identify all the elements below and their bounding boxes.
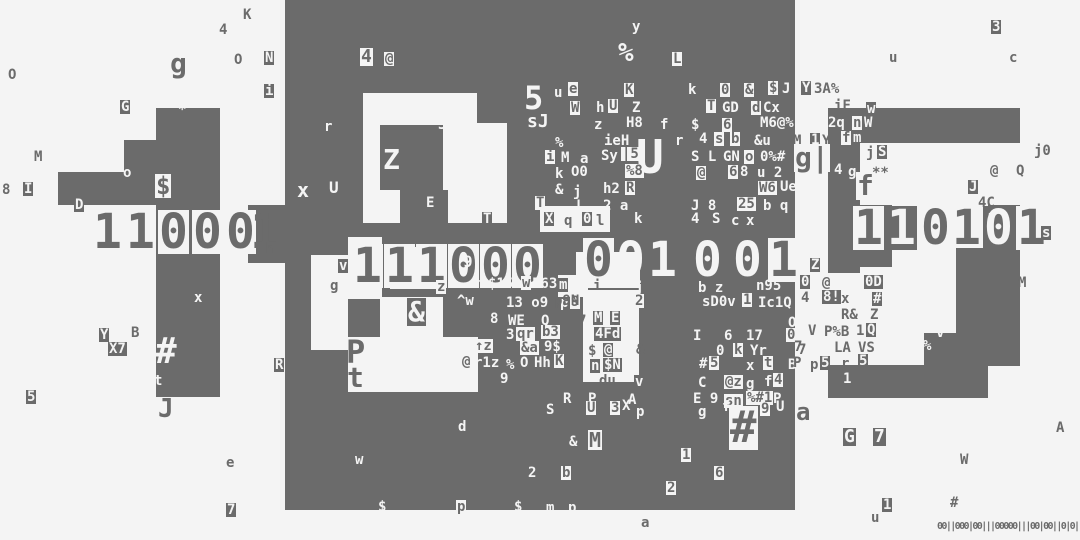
glyph: 9 (760, 402, 770, 416)
glyph: M (588, 430, 602, 450)
glyph: o (123, 166, 131, 180)
big-digit: 1 (853, 206, 884, 250)
glyph: 4 (699, 132, 707, 146)
barcode-strip: 00||000|00|||00000|||00|00||0|0| (937, 521, 1078, 532)
glyph: # (155, 334, 177, 370)
glyph: b z (698, 281, 723, 295)
glyph: 6 (722, 118, 732, 132)
glyph: 7 (873, 428, 886, 446)
glyph: 6 (728, 165, 738, 179)
glyph: I (23, 182, 33, 196)
glyph: 2 (528, 466, 536, 480)
glyph: Q (1016, 164, 1024, 178)
glyph: iF (834, 99, 851, 113)
glyph: 8! (822, 290, 841, 304)
glyph: g (444, 94, 469, 136)
glyph: k (733, 343, 743, 357)
glyph: 1 (681, 448, 691, 462)
glyph: 1 (742, 293, 752, 307)
glyph: P (988, 212, 995, 223)
glyph: f (764, 375, 772, 389)
glyph: & (744, 83, 754, 97)
glyph: J (158, 396, 174, 422)
glyph: h (265, 242, 273, 256)
glyph: p (636, 405, 644, 419)
big-digit: 1 (952, 206, 981, 250)
glyph: LA (834, 341, 851, 355)
glyph: P%B (824, 325, 849, 339)
glyph: 8 (2, 183, 10, 197)
glyph: J (968, 180, 978, 194)
glyph: S (546, 403, 554, 417)
glyph: r (324, 120, 332, 134)
glyph: X7 (108, 342, 127, 356)
glyph: s (1041, 226, 1051, 240)
glyph: r1z (474, 356, 499, 370)
glyph: G (843, 428, 856, 446)
glyph: F63 (532, 277, 557, 291)
glyph: M (561, 151, 569, 165)
glyph: U (776, 400, 784, 414)
glyph: 4 (691, 212, 699, 226)
big-digit: 0 (192, 210, 223, 254)
glyph: o (744, 150, 754, 164)
glyph: S (877, 145, 887, 159)
big-digit: 1 (352, 244, 383, 288)
glyph: 0 (800, 275, 810, 289)
glyph: 5 (524, 82, 543, 114)
glyph: 0 (582, 212, 592, 226)
glyph: # (699, 357, 707, 371)
glyph: T (706, 99, 716, 113)
glyph: 0D (864, 275, 883, 289)
glyph: 0 (720, 83, 730, 97)
big-digit: 0 (732, 238, 763, 282)
glyph: Z (383, 146, 400, 174)
glyph: % (555, 136, 563, 150)
glyph: Hh (534, 356, 551, 370)
glyph: v (634, 375, 644, 389)
glyph: % (923, 339, 931, 353)
glyph: c (1009, 51, 1017, 65)
glyph: 4Fd (594, 327, 621, 341)
glyph: GD (722, 101, 739, 115)
glyph: j0 (1034, 144, 1051, 158)
glyph: n (852, 116, 862, 130)
glyph: Y (99, 328, 109, 342)
glyph: 4 (219, 23, 227, 37)
glyph: m (546, 501, 554, 515)
glyph: z (436, 280, 446, 294)
glyph: I (693, 329, 701, 343)
glyph: j (573, 185, 581, 199)
glyph: @ (696, 166, 706, 180)
glyph: 9 (500, 372, 508, 386)
glyph: 3A% (814, 82, 839, 96)
glyph: & (636, 343, 644, 357)
glyph: M6@% (760, 116, 794, 130)
big-digit: 0 (583, 238, 614, 282)
glyph: l (596, 214, 604, 228)
glyph: L (672, 52, 682, 66)
glyph: 4 (834, 163, 842, 177)
glyph: G (450, 356, 458, 370)
glyph: R (274, 358, 284, 372)
glyph: g (170, 50, 187, 78)
glyph: 4 (360, 48, 373, 66)
glyph: J (782, 82, 790, 96)
glyph: % (506, 358, 514, 372)
glyph: 1 (843, 372, 851, 386)
glyph: # (729, 406, 758, 450)
big-digit: 0 (616, 238, 645, 282)
glyph: ↑z (474, 339, 493, 353)
glyph: v (338, 259, 348, 273)
glyph: Cx (763, 101, 780, 115)
glyph: &a (520, 341, 539, 355)
glyph: W6 (758, 181, 777, 195)
glyph: 3 (610, 401, 620, 415)
glyph: k (634, 212, 642, 226)
glyph: 4 (773, 373, 783, 387)
glyph: t (763, 356, 773, 370)
glyph: Z (632, 101, 640, 115)
glyph: u (889, 51, 897, 65)
big-digit: 1 (126, 210, 155, 254)
glyph: P (793, 356, 801, 370)
glyph: c (731, 214, 739, 228)
glyph: b q (763, 199, 788, 213)
glyph: 2 (666, 481, 676, 495)
glyph: t (347, 364, 364, 392)
glyph: B (131, 326, 139, 340)
glyph: &u (754, 134, 771, 148)
big-digit: 1 (648, 238, 677, 282)
glyph: m (853, 131, 861, 145)
big-digit: 0 (158, 210, 189, 254)
glyph: E (610, 311, 620, 325)
glyph: f (841, 131, 851, 145)
glyph: @ (461, 355, 471, 369)
glyph: w (521, 276, 531, 290)
glyph: 9 (463, 254, 473, 270)
glyph: C (698, 376, 706, 390)
glyph: S L (691, 150, 716, 164)
glyph: r (841, 357, 849, 371)
glyph: GN (723, 150, 740, 164)
glyph: 25 (737, 197, 756, 211)
glyph: p (456, 500, 466, 514)
glyph: 3 (991, 20, 1001, 34)
glyph: u 2 (757, 166, 782, 180)
big-digit: 1 (93, 210, 122, 254)
glyph: O (234, 53, 242, 67)
glyph: T (482, 212, 492, 226)
glyph: Sy (601, 149, 618, 163)
glyph: x (194, 291, 202, 305)
glyph: K (554, 354, 564, 368)
glyph: n (590, 359, 600, 373)
glyph: M (1018, 276, 1026, 290)
glyph: j (866, 146, 874, 160)
glyph: ^w (456, 294, 475, 308)
glyph: $ (378, 500, 386, 514)
glyph: 9$ (544, 340, 561, 354)
glyph: x (297, 180, 309, 200)
big-digit: 1 (384, 244, 415, 288)
glyph: du (599, 374, 616, 388)
glyph: e (568, 82, 578, 96)
glyph: @8 (584, 295, 601, 309)
glyph: X (622, 399, 630, 413)
glyph: 2 (634, 294, 644, 308)
glyph: k (688, 83, 696, 97)
glyph: 6 (724, 329, 732, 343)
glyph: p9N (554, 294, 579, 308)
glyph: b (561, 466, 571, 480)
block-rect (477, 123, 507, 223)
glyph: # (950, 496, 958, 510)
glyph: w (355, 453, 363, 467)
glyph: q (564, 214, 572, 228)
big-digit: 1 (768, 238, 799, 282)
glyph: i (593, 279, 601, 293)
glyph: Ue (780, 180, 797, 194)
glyph: E (426, 196, 434, 210)
glitch-art-canvas: 110001111000001001110101K4gONOiG*Mo8ID$h… (0, 0, 1080, 540)
glyph: m (474, 277, 482, 291)
glyph: O0 (571, 165, 588, 179)
glyph: w (866, 102, 876, 116)
glyph: b (730, 132, 740, 146)
glyph: @ (603, 343, 613, 357)
glyph: 7 (794, 340, 802, 354)
glyph: t (154, 374, 162, 388)
glyph: R (563, 392, 571, 406)
glyph: O (8, 68, 16, 82)
big-digit: 0 (692, 238, 723, 282)
glyph: $ (155, 174, 171, 198)
glyph: s (714, 132, 724, 146)
glyph: H8 (626, 116, 643, 130)
block-rect (400, 190, 448, 223)
glyph: U (586, 401, 596, 415)
glyph: h2 (603, 182, 620, 196)
glyph: S (712, 212, 720, 226)
glyph: d (458, 420, 466, 434)
glyph: sJ (527, 113, 549, 131)
glyph: $ (691, 118, 699, 132)
glyph: r (675, 134, 683, 148)
glyph: U (328, 180, 340, 196)
glyph: M (34, 150, 42, 164)
glyph: M (593, 311, 603, 325)
glyph: g (746, 377, 754, 391)
glyph: g (698, 405, 706, 419)
glyph: 7 (578, 314, 586, 328)
glyph: a (641, 516, 649, 530)
block-rect (348, 337, 478, 392)
glyph: d (751, 101, 761, 115)
glyph: x (746, 359, 754, 373)
glyph: U (608, 99, 618, 113)
glyph: 8 (490, 312, 498, 326)
glyph: O (520, 356, 528, 370)
glyph: m (558, 278, 568, 292)
glyph: # (872, 292, 882, 306)
glyph: i (264, 84, 274, 98)
glyph: v (936, 326, 944, 340)
glyph: p (810, 358, 818, 372)
glyph: u (871, 511, 879, 525)
glyph: @ (990, 164, 998, 178)
glyph: $ (588, 344, 596, 358)
glyph: Z (870, 308, 878, 322)
glyph: * (178, 103, 186, 117)
glyph: % (618, 40, 634, 66)
glyph: 7 (226, 503, 236, 517)
glyph: 4 (801, 291, 809, 305)
glyph: @ (384, 52, 394, 66)
glyph: & (555, 183, 563, 197)
glyph: 3 (438, 118, 446, 132)
glyph: 1 (856, 324, 864, 338)
glyph: x (746, 214, 754, 228)
glyph: 5 (709, 356, 719, 370)
glyph: G (120, 100, 130, 114)
glyph: 13 o9 (506, 296, 548, 310)
glyph: 2q (828, 116, 845, 130)
glyph: Ic1Q (758, 296, 792, 310)
glyph: %8 (625, 164, 644, 178)
glyph: V (808, 324, 816, 338)
glyph: i (545, 150, 555, 164)
glyph: X (544, 212, 554, 226)
block-rect (828, 365, 988, 398)
glyph: W (960, 453, 968, 467)
glyph: u (554, 86, 562, 100)
glyph: ** (872, 166, 889, 180)
glyph: $N (603, 358, 622, 372)
glyph: R (625, 181, 635, 195)
glyph: 5 (858, 354, 868, 368)
glyph: T (535, 196, 545, 210)
glyph: qr (516, 327, 535, 341)
glyph: z (594, 118, 602, 132)
glyph: g (330, 279, 338, 293)
glyph: 6 (714, 466, 724, 480)
block-rect (956, 248, 1020, 334)
big-digit: 0 (920, 206, 951, 250)
glyph: 0%# (760, 150, 785, 164)
glyph: e (226, 456, 234, 470)
block-rect (124, 140, 220, 173)
glyph: 17 (746, 329, 763, 343)
glyph: sD0v (702, 295, 736, 309)
glyph: Q (866, 323, 876, 337)
glyph: W (864, 116, 872, 130)
glyph: 5 (26, 390, 36, 404)
glyph: 2 a (603, 199, 628, 213)
glyph: Z (810, 258, 820, 272)
glyph: h (596, 101, 604, 115)
glyph: D (74, 198, 84, 212)
glyph: 4C (978, 196, 995, 210)
glyph: x (841, 292, 849, 306)
glyph: g| (794, 144, 830, 172)
glyph: & (568, 435, 578, 449)
glyph: $15 (488, 277, 513, 291)
glyph: Y (801, 81, 811, 95)
glyph: W (570, 101, 580, 115)
glyph: @z (724, 375, 743, 389)
glyph: k (555, 167, 563, 181)
glyph: y (632, 20, 640, 34)
glyph: 5 (820, 356, 830, 370)
glyph: n95 (756, 279, 781, 293)
big-digit: 1 (886, 206, 917, 250)
glyph: @ (822, 276, 830, 290)
glyph: $ (514, 500, 522, 514)
glyph: R& (841, 308, 858, 322)
glyph: N (264, 51, 274, 65)
glyph: 8 (740, 165, 748, 179)
glyph: K (243, 8, 251, 22)
glyph: 3 (506, 328, 514, 342)
glyph: p (568, 501, 576, 515)
glyph: b3 (541, 325, 560, 339)
glyph: A (1056, 421, 1064, 435)
glyph: a (796, 400, 810, 424)
glyph: 1 (882, 498, 892, 512)
glyph: $ (768, 81, 778, 95)
glyph: K (624, 83, 634, 97)
glyph: & (407, 298, 426, 326)
